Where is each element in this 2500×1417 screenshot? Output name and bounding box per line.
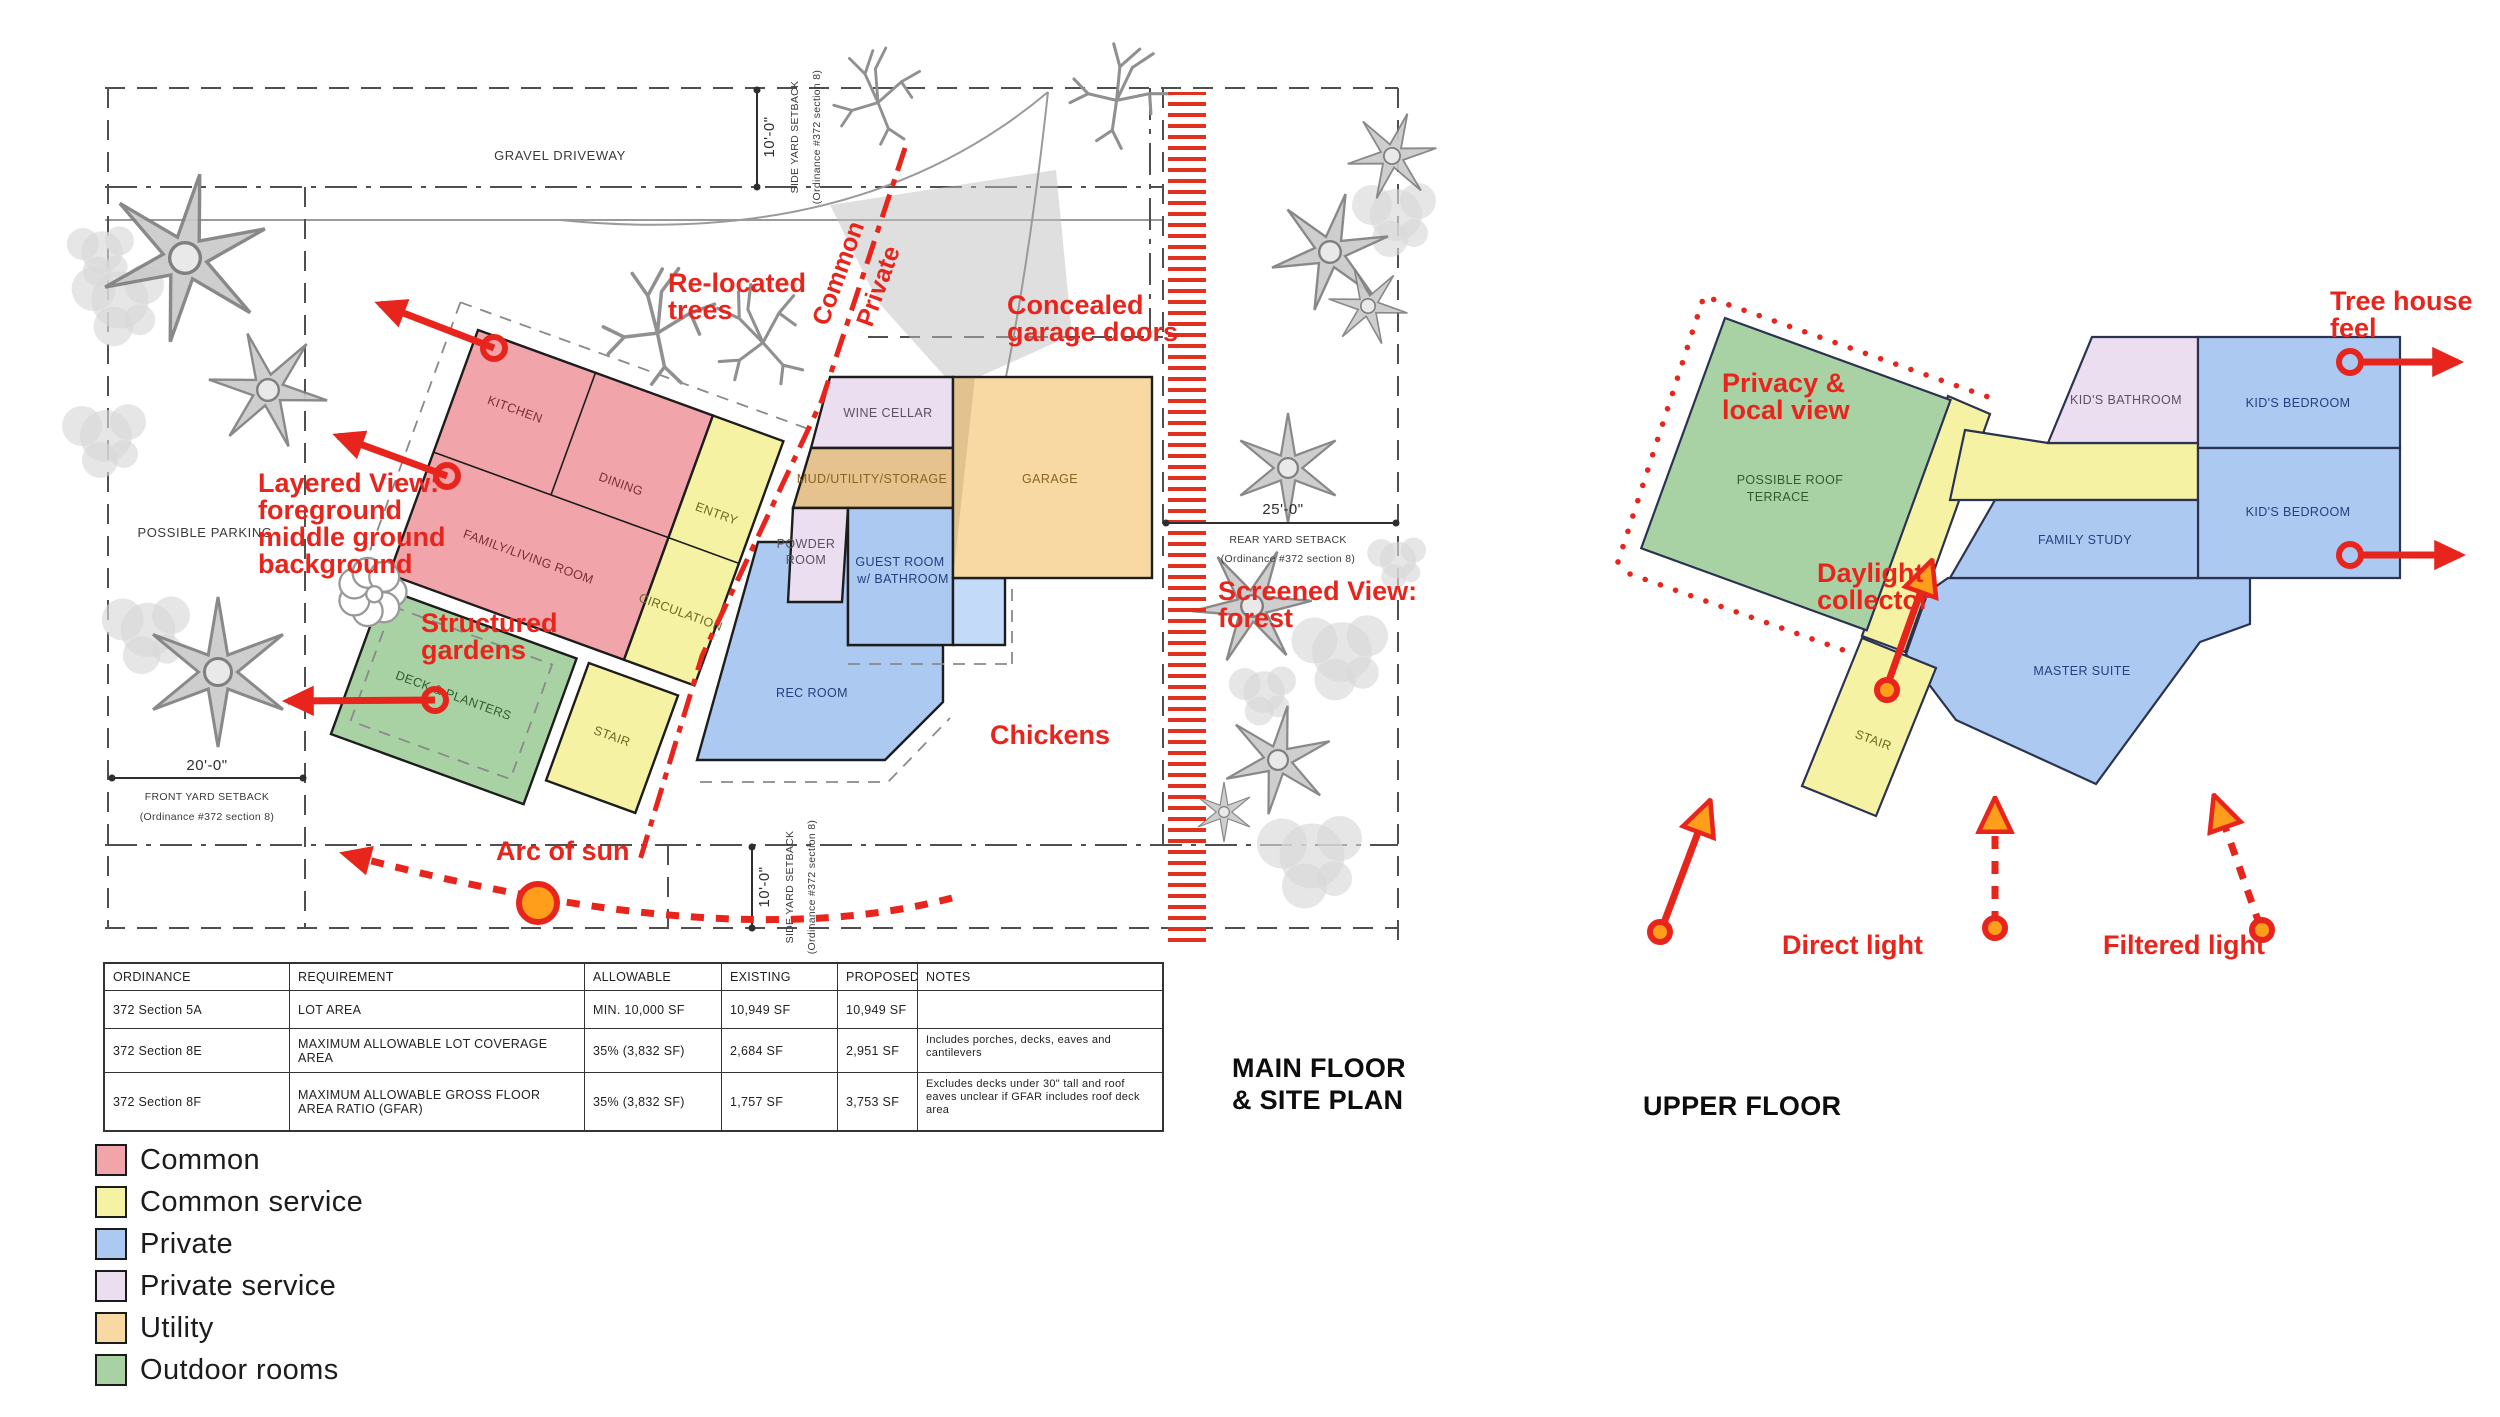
anno-filtered-light: Filtered light	[2103, 930, 2265, 960]
table-cell: 2,951 SF	[838, 1029, 918, 1073]
room-label-family-study: FAMILY STUDY	[2038, 533, 2132, 547]
table-header-existing: EXISTING	[722, 964, 838, 991]
bare-tree-icon	[1053, 26, 1185, 162]
table-header-allowable: ALLOWABLE	[585, 964, 722, 991]
setback-side-bottom-name: SIDE YARD SETBACK	[784, 831, 796, 944]
legend-swatch-utility	[95, 1312, 127, 1344]
room-label-mud-utility: MUD/UTILITY/STORAGE	[797, 472, 947, 486]
room-label-powder-2: ROOM	[786, 553, 827, 567]
table-cell: Includes porches, decks, eaves and canti…	[918, 1029, 1162, 1073]
table-cell: MAXIMUM ALLOWABLE LOT COVERAGE AREA	[290, 1029, 585, 1073]
room-label-kids-bedroom-top: KID'S BEDROOM	[2246, 396, 2351, 410]
svg-text:middle ground: middle ground	[258, 522, 445, 552]
table-cell: 372 Section 8F	[105, 1073, 290, 1130]
legend-swatch-private	[95, 1228, 127, 1260]
anno-direct-light: Direct light	[1782, 930, 1923, 960]
anno-privacy-local-view: Privacy &	[1722, 368, 1845, 398]
table-cell: 372 Section 5A	[105, 991, 290, 1029]
table-cell: MIN. 10,000 SF	[585, 991, 722, 1029]
setback-side-top-name: SIDE YARD SETBACK	[789, 81, 801, 194]
table-cell: 35% (3,832 SF)	[585, 1029, 722, 1073]
setback-side-top-ord: (Ordinance #372 section 8)	[811, 70, 823, 204]
setback-rear-name: REAR YARD SETBACK	[1229, 534, 1346, 546]
svg-text:collector: collector	[1817, 585, 1930, 615]
legend-item-utility: Utility	[95, 1307, 363, 1349]
room-label-guest-1: GUEST ROOM	[855, 555, 944, 569]
legend-label: Utility	[140, 1312, 214, 1345]
legend-item-common: Common	[95, 1139, 363, 1181]
legend-swatch-private-service	[95, 1270, 127, 1302]
anno-layered-view: Layered View:	[258, 468, 439, 498]
room-label-guest-2: w/ BATHROOM	[856, 572, 949, 586]
architectural-plan-page: KITCHEN DINING FAMILY/LIVING ROOM ENTRY …	[0, 0, 2500, 1417]
room-label-powder-1: POWDER	[777, 537, 836, 551]
legend-item-outdoor-rooms: Outdoor rooms	[95, 1349, 363, 1391]
anno-daylight-collector: Daylight	[1817, 558, 1924, 588]
anno-relocated-trees: Re-located	[668, 268, 806, 298]
legend-item-private: Private	[95, 1223, 363, 1265]
setback-front-dim: 20'-0"	[186, 757, 227, 774]
setback-front-ord: (Ordinance #372 section 8)	[140, 811, 274, 823]
legend-label: Common	[140, 1144, 260, 1177]
legend-swatch-common	[95, 1144, 127, 1176]
tree-star-icon	[190, 311, 347, 470]
anno-arc-of-sun: Arc of sun	[496, 836, 630, 866]
possible-parking-label: POSSIBLE PARKING	[137, 525, 272, 540]
svg-text:garage doors: garage doors	[1007, 317, 1178, 347]
ordinance-table: ORDINANCE REQUIREMENT ALLOWABLE EXISTING…	[103, 962, 1164, 1132]
room-label-kids-bathroom: KID'S BATHROOM	[2070, 393, 2182, 407]
setback-rear-dim: 25'-0"	[1262, 501, 1303, 518]
legend-label: Common service	[140, 1186, 363, 1219]
room-label-master-suite: MASTER SUITE	[2033, 664, 2130, 678]
table-cell: LOT AREA	[290, 991, 585, 1029]
svg-text:gardens: gardens	[421, 635, 526, 665]
table-header-proposed: PROPOSED	[838, 964, 918, 991]
table-cell: Excludes decks under 30" tall and roof e…	[918, 1073, 1162, 1130]
svg-text:trees: trees	[668, 295, 733, 325]
room-label-wine-cellar: WINE CELLAR	[843, 406, 932, 420]
legend-label: Outdoor rooms	[140, 1354, 339, 1387]
setback-side-top-dim: 10'-0"	[761, 116, 778, 157]
svg-text:foreground: foreground	[258, 495, 402, 525]
table-cell: 35% (3,832 SF)	[585, 1073, 722, 1130]
room-label-roof-terrace-1: POSSIBLE ROOF	[1737, 473, 1844, 487]
plans-drawing: KITCHEN DINING FAMILY/LIVING ROOM ENTRY …	[0, 0, 2500, 1417]
legend: Common Common service Private Private se…	[95, 1139, 363, 1391]
room-label-rec-room: REC ROOM	[776, 686, 848, 700]
anno-screened-view: Screened View:	[1218, 576, 1417, 606]
table-header-ordinance: ORDINANCE	[105, 964, 290, 991]
table-cell: 372 Section 8E	[105, 1029, 290, 1073]
legend-swatch-outdoor-rooms	[95, 1354, 127, 1386]
room-label-kids-bedroom-bottom: KID'S BEDROOM	[2246, 505, 2351, 519]
svg-text:feel: feel	[2330, 313, 2377, 343]
anno-structured-gardens: Structured	[421, 608, 558, 638]
room-label-garage: GARAGE	[1022, 472, 1078, 486]
setback-front-name: FRONT YARD SETBACK	[145, 791, 269, 803]
table-header-requirement: REQUIREMENT	[290, 964, 585, 991]
anno-chickens: Chickens	[990, 720, 1110, 750]
table-cell: 10,949 SF	[838, 991, 918, 1029]
svg-text:local view: local view	[1722, 395, 1851, 425]
svg-text:forest: forest	[1218, 603, 1293, 633]
table-cell: 2,684 SF	[722, 1029, 838, 1073]
screen-hatch	[1168, 92, 1206, 948]
main-floor-title: MAIN FLOOR & SITE PLAN	[1232, 1052, 1406, 1116]
anno-concealed-garage: Concealed	[1007, 290, 1144, 320]
sun-icon	[519, 884, 557, 922]
setback-rear-ord: (Ordinance #372 section 8)	[1221, 553, 1355, 565]
legend-item-common-service: Common service	[95, 1181, 363, 1223]
table-cell: 3,753 SF	[838, 1073, 918, 1130]
setback-side-bottom-dim: 10'-0"	[756, 866, 773, 907]
legend-label: Private service	[140, 1270, 336, 1303]
gravel-driveway-label: GRAVEL DRIVEWAY	[494, 148, 626, 163]
room-label-roof-terrace-2: TERRACE	[1747, 490, 1810, 504]
table-cell	[918, 991, 1162, 1029]
upper-floor-title: UPPER FLOOR	[1643, 1090, 1841, 1122]
legend-label: Private	[140, 1228, 233, 1261]
svg-text:background: background	[258, 549, 413, 579]
table-cell: 10,949 SF	[722, 991, 838, 1029]
setback-side-bottom-ord: (Ordinance #372 section 8)	[806, 820, 818, 954]
legend-item-private-service: Private service	[95, 1265, 363, 1307]
table-cell: 1,757 SF	[722, 1073, 838, 1130]
bare-tree-icon	[834, 48, 920, 144]
table-cell: MAXIMUM ALLOWABLE GROSS FLOOR AREA RATIO…	[290, 1073, 585, 1130]
legend-swatch-common-service	[95, 1186, 127, 1218]
anno-tree-house-feel: Tree house	[2330, 286, 2473, 316]
table-header-notes: NOTES	[918, 964, 1162, 991]
